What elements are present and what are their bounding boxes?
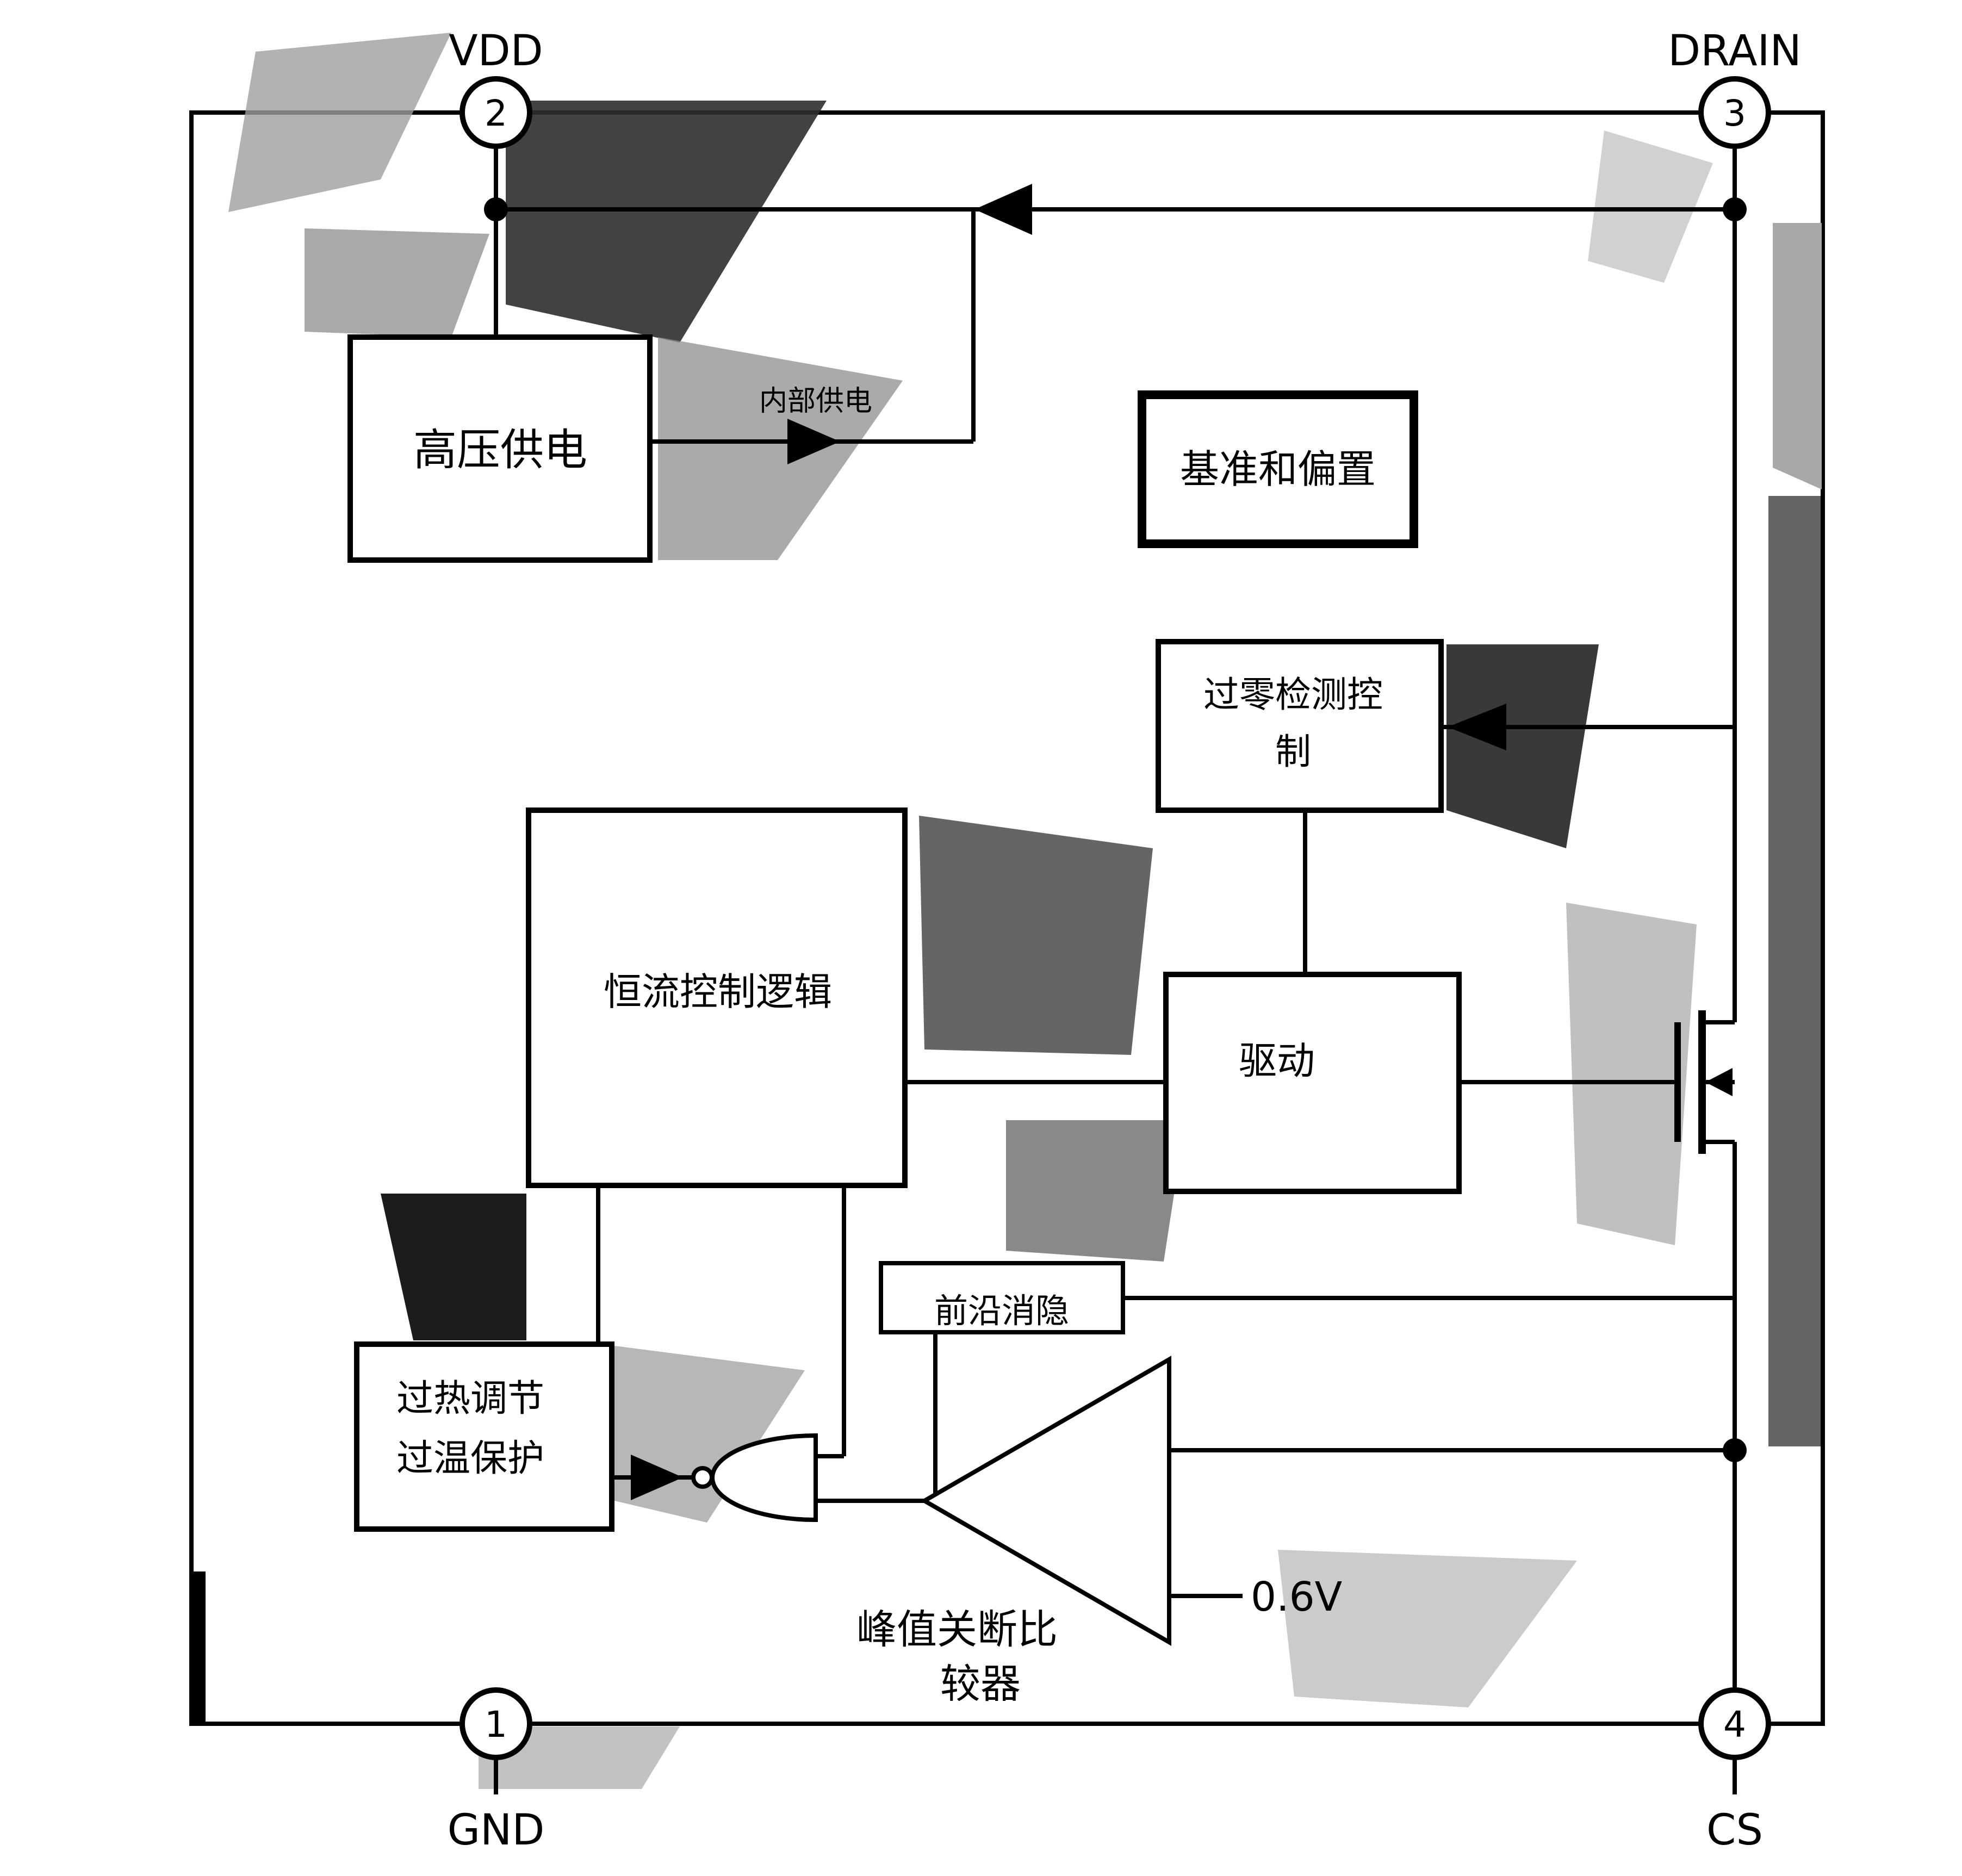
glitch-shard bbox=[1446, 644, 1599, 848]
glitch-shard bbox=[919, 816, 1153, 1055]
zcd-box bbox=[1158, 642, 1441, 810]
junction-dot bbox=[1723, 1438, 1747, 1462]
drain-pin: 3 DRAIN bbox=[1668, 27, 1802, 146]
thermal-label-line2: 过温保护 bbox=[396, 1437, 544, 1480]
peak-comparator-label-line2: 较器 bbox=[940, 1661, 1021, 1707]
ref-bias-label: 基准和偏置 bbox=[1180, 446, 1376, 492]
glitch-shard bbox=[305, 228, 489, 337]
mosfet-body-arrow-icon bbox=[1705, 1068, 1733, 1096]
driver-label: 驱动 bbox=[1239, 1039, 1315, 1083]
glitch-shard bbox=[1773, 223, 1822, 489]
leb-label: 前沿消隐 bbox=[934, 1291, 1069, 1331]
glitch-shard bbox=[381, 1194, 526, 1340]
thermal-block: 过热调节 过温保护 bbox=[357, 1344, 612, 1529]
junction-dot bbox=[1723, 197, 1747, 221]
glitch-shard bbox=[1768, 496, 1821, 1446]
junction-dot bbox=[484, 197, 508, 221]
peak-comparator-label-line1: 峰值关断比 bbox=[856, 1606, 1058, 1653]
gnd-pin-label: GND bbox=[448, 1806, 545, 1855]
glitch-shard bbox=[1006, 1120, 1185, 1262]
glitch-shard bbox=[191, 1571, 206, 1724]
driver-block: 驱动 bbox=[1166, 974, 1459, 1191]
zcd-label-line2: 制 bbox=[1275, 731, 1311, 773]
thermal-label-line1: 过热调节 bbox=[396, 1377, 544, 1420]
drain-pin-label: DRAIN bbox=[1668, 27, 1802, 76]
cc-logic-block: 恒流控制逻辑 bbox=[529, 810, 905, 1185]
cs-pin-label: CS bbox=[1706, 1806, 1763, 1855]
internal-supply-label: 内部供电 bbox=[759, 385, 872, 418]
nand-gate-bubble bbox=[693, 1468, 712, 1487]
cs-pin-number: 4 bbox=[1723, 1704, 1746, 1745]
diagram-canvas: 高压供电 基准和偏置 过零检测控 制 恒流控制逻辑 驱动 前沿消隐 过热调节 过… bbox=[0, 0, 1962, 1876]
hv-supply-block: 高压供电 bbox=[350, 337, 650, 560]
hv-supply-label: 高压供电 bbox=[413, 425, 587, 475]
glitch-shard bbox=[506, 101, 827, 343]
glitch-shard bbox=[658, 337, 903, 560]
zcd-label-line1: 过零检测控 bbox=[1203, 674, 1383, 716]
zcd-block: 过零检测控 制 bbox=[1158, 642, 1441, 810]
glitch-shard bbox=[228, 33, 451, 212]
cc-logic-label: 恒流控制逻辑 bbox=[604, 970, 832, 1014]
vdd-pin-label: VDD bbox=[449, 27, 543, 76]
leb-block: 前沿消隐 bbox=[881, 1263, 1123, 1332]
vdd-pin-number: 2 bbox=[485, 92, 507, 134]
thermal-box bbox=[357, 1344, 612, 1529]
ref-bias-block: 基准和偏置 bbox=[1142, 395, 1414, 544]
vref-label: 0.6V bbox=[1251, 1574, 1343, 1620]
gnd-pin-number: 1 bbox=[485, 1704, 507, 1745]
functional-block-diagram: 高压供电 基准和偏置 过零检测控 制 恒流控制逻辑 驱动 前沿消隐 过热调节 过… bbox=[0, 0, 1962, 1876]
drain-pin-number: 3 bbox=[1723, 92, 1746, 134]
peak-comparator-triangle bbox=[924, 1359, 1169, 1642]
glitch-shard bbox=[1588, 131, 1713, 283]
rail-left-arrow-icon bbox=[974, 184, 1032, 235]
